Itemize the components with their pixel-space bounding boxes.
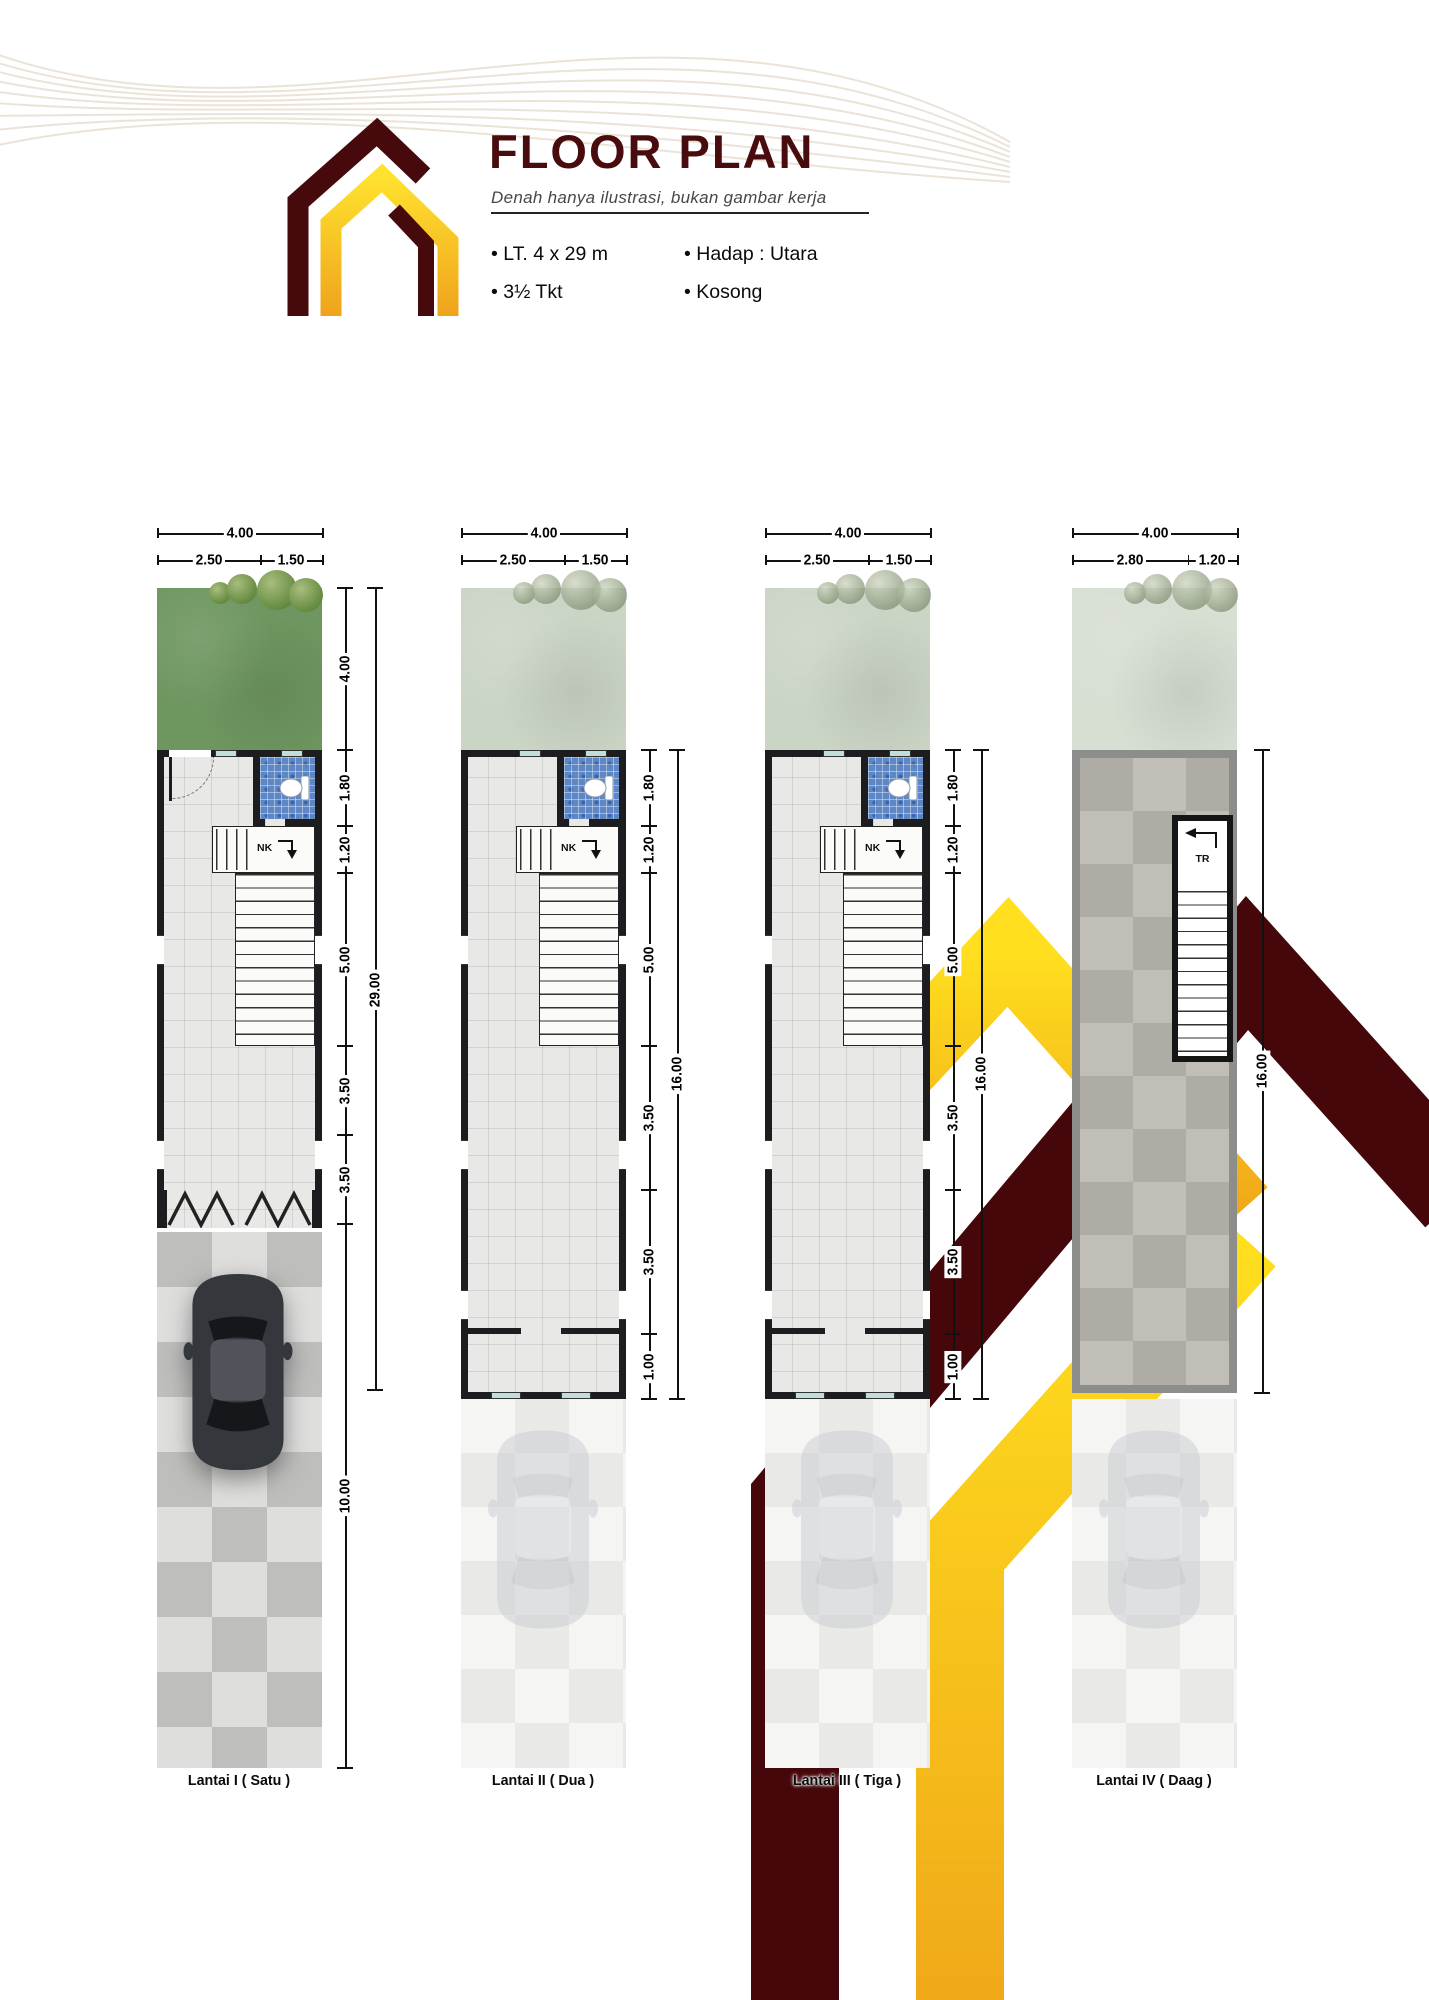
dim-tick bbox=[337, 872, 353, 874]
window bbox=[923, 1140, 930, 1170]
staircase bbox=[539, 873, 619, 1046]
door-opening bbox=[169, 750, 211, 757]
dim-tick bbox=[1254, 749, 1270, 751]
dimension-label-overall: 16.00 bbox=[668, 1054, 685, 1094]
dimension-label: 4.00 bbox=[527, 524, 559, 541]
window bbox=[315, 935, 322, 965]
dim-tick bbox=[337, 1045, 353, 1047]
floor-name-label: Lantai I ( Satu ) bbox=[188, 1772, 290, 1789]
dim-tick bbox=[641, 872, 657, 874]
dimension-label-overall: 29.00 bbox=[366, 970, 383, 1010]
dim-tick bbox=[626, 555, 628, 565]
window bbox=[461, 1290, 468, 1320]
dimension-label: 3.50 bbox=[944, 1102, 961, 1134]
dim-tick bbox=[641, 749, 657, 751]
dim-tick bbox=[641, 825, 657, 827]
dimension-label: 1.50 bbox=[275, 551, 307, 568]
window bbox=[157, 1140, 164, 1170]
dim-tick bbox=[157, 528, 159, 538]
wall bbox=[312, 1190, 322, 1228]
dimension-label: 1.80 bbox=[336, 772, 353, 804]
dim-tick bbox=[564, 555, 566, 565]
dimension-label: 3.50 bbox=[640, 1246, 657, 1278]
window bbox=[765, 935, 772, 965]
wall bbox=[561, 1328, 619, 1334]
dimension-label: 1.80 bbox=[640, 772, 657, 804]
dim-tick bbox=[1237, 528, 1239, 538]
dim-tick bbox=[930, 555, 932, 565]
dimension-label: 4.00 bbox=[831, 524, 863, 541]
dimension-label-overall: 16.00 bbox=[1253, 1051, 1270, 1091]
dim-tick bbox=[669, 749, 685, 751]
dim-tick bbox=[337, 1134, 353, 1136]
stair-label: TR bbox=[1178, 853, 1227, 865]
dim-tick bbox=[641, 1333, 657, 1335]
dimension-label-overall: 16.00 bbox=[972, 1054, 989, 1094]
dimension-label: 3.50 bbox=[336, 1163, 353, 1195]
dimension-label: 5.00 bbox=[336, 943, 353, 975]
staircase bbox=[235, 873, 315, 1046]
window bbox=[619, 1140, 626, 1170]
dim-tick bbox=[1237, 555, 1239, 565]
window bbox=[765, 1140, 772, 1170]
dimension-label: 3.50 bbox=[944, 1246, 961, 1278]
dimension-label: 5.00 bbox=[944, 943, 961, 975]
staircase: TR bbox=[1172, 815, 1233, 1062]
window bbox=[315, 1140, 322, 1170]
dimension-label: 3.50 bbox=[336, 1074, 353, 1106]
toilet-icon bbox=[886, 769, 920, 807]
dim-tick bbox=[367, 587, 383, 589]
garden-area bbox=[1072, 588, 1237, 750]
window bbox=[157, 935, 164, 965]
garden-area bbox=[461, 588, 626, 750]
garden-area bbox=[765, 588, 930, 750]
dim-tick bbox=[260, 555, 262, 565]
spec-condition: Kosong bbox=[684, 281, 762, 304]
window bbox=[765, 1290, 772, 1320]
dim-tick bbox=[669, 1398, 685, 1400]
wall bbox=[861, 757, 868, 826]
stair-label: NK bbox=[257, 842, 272, 854]
dimension-label: 2.80 bbox=[1114, 551, 1146, 568]
dim-tick bbox=[973, 1398, 989, 1400]
stair-landing: NK bbox=[212, 826, 315, 873]
stair-winders bbox=[216, 829, 256, 870]
floor-plan-flyer: FLOOR PLAN Denah hanya ilustrasi, bukan … bbox=[0, 0, 1429, 2000]
window bbox=[585, 750, 607, 757]
window bbox=[519, 750, 541, 757]
shrub-icon bbox=[227, 574, 257, 604]
car-icon bbox=[488, 1417, 598, 1642]
wall bbox=[861, 819, 873, 826]
shrub-icon bbox=[1142, 574, 1172, 604]
window bbox=[491, 1392, 521, 1399]
wall bbox=[557, 757, 564, 826]
dim-tick bbox=[337, 825, 353, 827]
dim-tick bbox=[765, 555, 767, 565]
dim-tick bbox=[945, 749, 961, 751]
wall bbox=[589, 819, 619, 826]
dim-tick bbox=[765, 528, 767, 538]
page-title: FLOOR PLAN bbox=[489, 124, 814, 179]
dim-tick bbox=[461, 528, 463, 538]
wall bbox=[765, 1392, 930, 1399]
stair-landing: NK bbox=[516, 826, 619, 873]
window bbox=[865, 1392, 895, 1399]
shrub-icon bbox=[1204, 578, 1238, 612]
dimension-label: 1.50 bbox=[579, 551, 611, 568]
dim-tick bbox=[157, 555, 159, 565]
window bbox=[823, 750, 845, 757]
dimension-label: 1.20 bbox=[944, 833, 961, 865]
folding-door-icon bbox=[244, 1190, 312, 1228]
wall bbox=[461, 1392, 626, 1399]
dim-tick bbox=[930, 528, 932, 538]
shrub-icon bbox=[531, 574, 561, 604]
floor-name-label: Lantai III ( Tiga ) bbox=[793, 1772, 901, 1789]
dim-tick bbox=[945, 825, 961, 827]
carport-faded bbox=[1072, 1399, 1237, 1768]
dim-tick bbox=[945, 1189, 961, 1191]
toilet-icon bbox=[582, 769, 616, 807]
wall bbox=[468, 1328, 521, 1334]
spec-storeys: 3½ Tkt bbox=[491, 281, 563, 304]
car-icon bbox=[792, 1417, 902, 1642]
dim-tick bbox=[322, 528, 324, 538]
dimension-label: 10.00 bbox=[336, 1476, 353, 1516]
bathroom bbox=[564, 757, 619, 819]
down-arrow-icon bbox=[884, 835, 910, 861]
dimension-label: 1.00 bbox=[944, 1350, 961, 1382]
stair-landing: NK bbox=[820, 826, 923, 873]
dim-tick bbox=[337, 587, 353, 589]
down-arrow-icon bbox=[276, 835, 302, 861]
dim-tick bbox=[1254, 1392, 1270, 1394]
shrub-icon bbox=[835, 574, 865, 604]
dim-tick bbox=[322, 555, 324, 565]
car-icon bbox=[1099, 1417, 1209, 1642]
carport bbox=[157, 1232, 322, 1768]
shrub-icon bbox=[897, 578, 931, 612]
folding-door-icon bbox=[167, 1190, 235, 1228]
roof-deck: TR bbox=[1072, 750, 1237, 1393]
wall bbox=[557, 819, 569, 826]
window bbox=[561, 1392, 591, 1399]
dimension-label: 1.20 bbox=[1196, 551, 1228, 568]
dim-tick bbox=[626, 528, 628, 538]
dim-tick bbox=[945, 1045, 961, 1047]
stair-treads bbox=[1178, 891, 1227, 1054]
stair-winders bbox=[824, 829, 864, 870]
dimension-label: 4.00 bbox=[1138, 524, 1170, 541]
stair-label: NK bbox=[561, 842, 576, 854]
logo-house-icon bbox=[276, 116, 462, 316]
dimension-label: 1.80 bbox=[944, 772, 961, 804]
building-floor-1: NK bbox=[157, 750, 322, 1228]
dim-tick bbox=[868, 555, 870, 565]
toilet-icon bbox=[278, 769, 312, 807]
dim-tick bbox=[337, 1767, 353, 1769]
dim-tick bbox=[945, 872, 961, 874]
left-arrow-icon bbox=[1182, 826, 1222, 852]
dim-tick bbox=[641, 1045, 657, 1047]
floor-name-label: Lantai IV ( Daag ) bbox=[1096, 1772, 1212, 1789]
window bbox=[215, 750, 237, 757]
dimension-label: 1.20 bbox=[336, 833, 353, 865]
dimension-label: 5.00 bbox=[640, 943, 657, 975]
wall bbox=[253, 757, 260, 826]
spec-land-size: LT. 4 x 29 m bbox=[491, 243, 608, 266]
dimension-label: 1.50 bbox=[883, 551, 915, 568]
bathroom bbox=[868, 757, 923, 819]
dim-tick bbox=[337, 749, 353, 751]
dim-tick bbox=[461, 555, 463, 565]
dim-tick bbox=[337, 1223, 353, 1225]
dimension-label: 3.50 bbox=[640, 1102, 657, 1134]
door-swing-arc bbox=[172, 757, 214, 799]
wall bbox=[253, 819, 265, 826]
dimension-label: 1.00 bbox=[640, 1350, 657, 1382]
window bbox=[889, 750, 911, 757]
building-floor-2: NK bbox=[461, 750, 626, 1399]
window bbox=[281, 750, 303, 757]
garden-area bbox=[157, 588, 322, 750]
carport-faded bbox=[765, 1399, 930, 1768]
dim-tick bbox=[1072, 555, 1074, 565]
floor-name-label: Lantai II ( Dua ) bbox=[492, 1772, 594, 1789]
down-arrow-icon bbox=[580, 835, 606, 861]
carport-faded bbox=[461, 1399, 626, 1768]
page-subtitle: Denah hanya ilustrasi, bukan gambar kerj… bbox=[491, 188, 826, 208]
dimension-label: 1.20 bbox=[640, 833, 657, 865]
staircase bbox=[843, 873, 923, 1046]
wall bbox=[157, 1190, 167, 1228]
spec-facing: Hadap : Utara bbox=[684, 243, 818, 266]
dim-tick bbox=[1072, 528, 1074, 538]
window bbox=[795, 1392, 825, 1399]
dimension-label: 2.50 bbox=[192, 551, 224, 568]
dim-tick bbox=[973, 749, 989, 751]
dim-tick bbox=[945, 1398, 961, 1400]
window bbox=[461, 935, 468, 965]
window bbox=[619, 935, 626, 965]
dim-tick bbox=[367, 1389, 383, 1391]
bathroom bbox=[260, 757, 315, 819]
dimension-label: 4.00 bbox=[336, 653, 353, 685]
shrub-icon bbox=[593, 578, 627, 612]
dimension-label: 2.50 bbox=[496, 551, 528, 568]
car-icon bbox=[182, 1268, 294, 1476]
dimension-label: 4.00 bbox=[223, 524, 255, 541]
window bbox=[461, 1140, 468, 1170]
wall bbox=[285, 819, 315, 826]
dim-tick bbox=[1188, 555, 1190, 565]
wall bbox=[865, 1328, 923, 1334]
dim-tick bbox=[641, 1189, 657, 1191]
dim-tick bbox=[945, 1333, 961, 1335]
dimension-label: 2.50 bbox=[800, 551, 832, 568]
window bbox=[619, 1290, 626, 1320]
stair-winders bbox=[520, 829, 560, 870]
stair-label: NK bbox=[865, 842, 880, 854]
wall bbox=[893, 819, 923, 826]
window bbox=[923, 935, 930, 965]
header-divider bbox=[491, 212, 869, 214]
dim-tick bbox=[641, 1398, 657, 1400]
building-floor-3: NK bbox=[765, 750, 930, 1399]
shrub-icon bbox=[289, 578, 323, 612]
window bbox=[923, 1290, 930, 1320]
wall bbox=[772, 1328, 825, 1334]
